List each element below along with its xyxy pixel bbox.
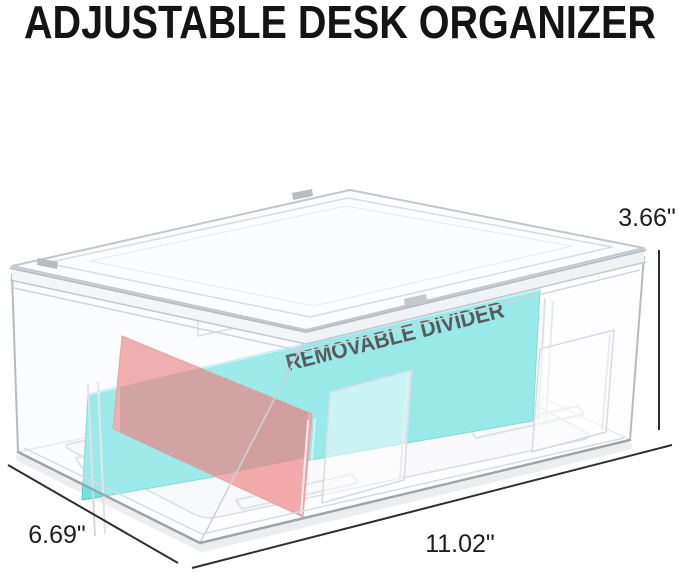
desk-organizer-figure: ADJUSTABLE DESK ORGANIZER REMOVABLE DIVI… — [0, 0, 679, 572]
product-image: ADJUSTABLE DESK ORGANIZER REMOVABLE DIVI… — [0, 0, 679, 572]
depth-dimension-label: 6.69" — [28, 521, 86, 549]
width-dimension-label: 11.02" — [425, 530, 495, 558]
height-dimension-label: 3.66" — [618, 204, 676, 232]
product-title: ADJUSTABLE DESK ORGANIZER — [24, 0, 656, 48]
